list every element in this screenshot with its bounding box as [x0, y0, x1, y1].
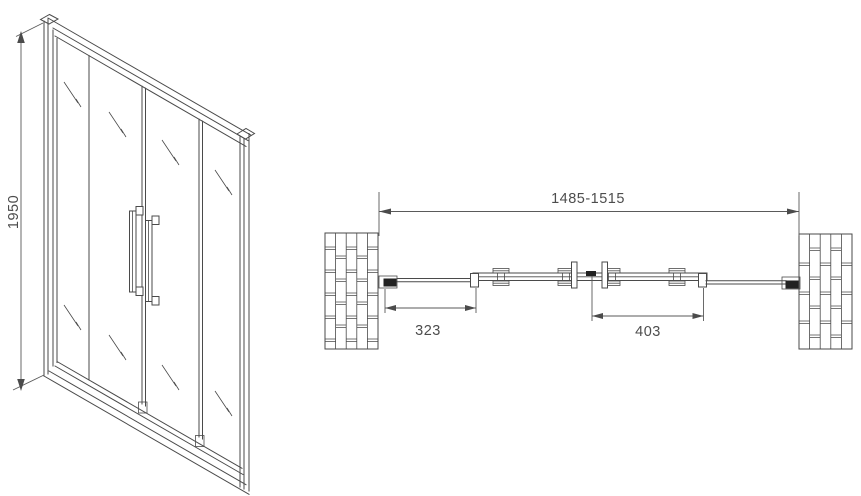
track-end-block — [471, 274, 479, 288]
glass-shine-icon — [162, 140, 179, 165]
center-seal — [587, 272, 596, 276]
left-door-dimension: 323 — [385, 288, 476, 339]
right-door-label: 403 — [635, 324, 661, 340]
glass-shine-icon — [215, 391, 232, 416]
right-fixed-glass — [706, 281, 786, 284]
left-door-handle — [130, 207, 144, 296]
brick-hatch — [325, 249, 378, 341]
right-handle-top — [602, 262, 608, 288]
glass-shine-icon — [64, 82, 81, 107]
glass-shine-icon — [162, 365, 179, 390]
glass-shine-icon — [109, 335, 126, 360]
door-handles-front — [130, 207, 160, 306]
arrow-right-icon — [787, 209, 799, 215]
arrow-right-icon — [465, 305, 476, 311]
height-dimension: 1950 — [6, 23, 44, 391]
arrow-left-icon — [592, 313, 603, 319]
arrow-left-icon — [379, 209, 391, 215]
glass-shine-icon — [215, 170, 232, 195]
brick-hatch — [325, 247, 378, 339]
left-handle-top — [572, 262, 578, 288]
track-end-block — [699, 274, 707, 288]
brick-hatch — [799, 250, 852, 337]
right-door-handle — [146, 216, 160, 305]
left-wall — [325, 233, 378, 349]
left-door-label: 323 — [415, 323, 441, 339]
left-wall-bracket-fill — [384, 279, 396, 286]
plan-view: 1485-1515 — [325, 191, 852, 349]
width-dimension: 1485-1515 — [379, 191, 799, 236]
front-view: 1950 — [6, 15, 255, 495]
brick-hatch — [799, 248, 852, 335]
technical-drawing: 1950 — [0, 0, 861, 496]
right-wall-bracket-fill — [786, 281, 798, 288]
sliding-panel-left-stile — [142, 86, 146, 406]
arrow-right-icon — [693, 313, 704, 319]
sliding-panel-right-stile — [199, 119, 203, 439]
right-wall — [799, 234, 852, 349]
track-assembly — [379, 262, 800, 289]
height-label: 1950 — [6, 195, 22, 229]
arrow-left-icon — [385, 305, 396, 311]
overall-width-label: 1485-1515 — [551, 191, 625, 207]
glass-shine-icon — [64, 305, 81, 330]
left-fixed-glass — [397, 279, 474, 282]
glass-shine-icon — [109, 112, 126, 137]
